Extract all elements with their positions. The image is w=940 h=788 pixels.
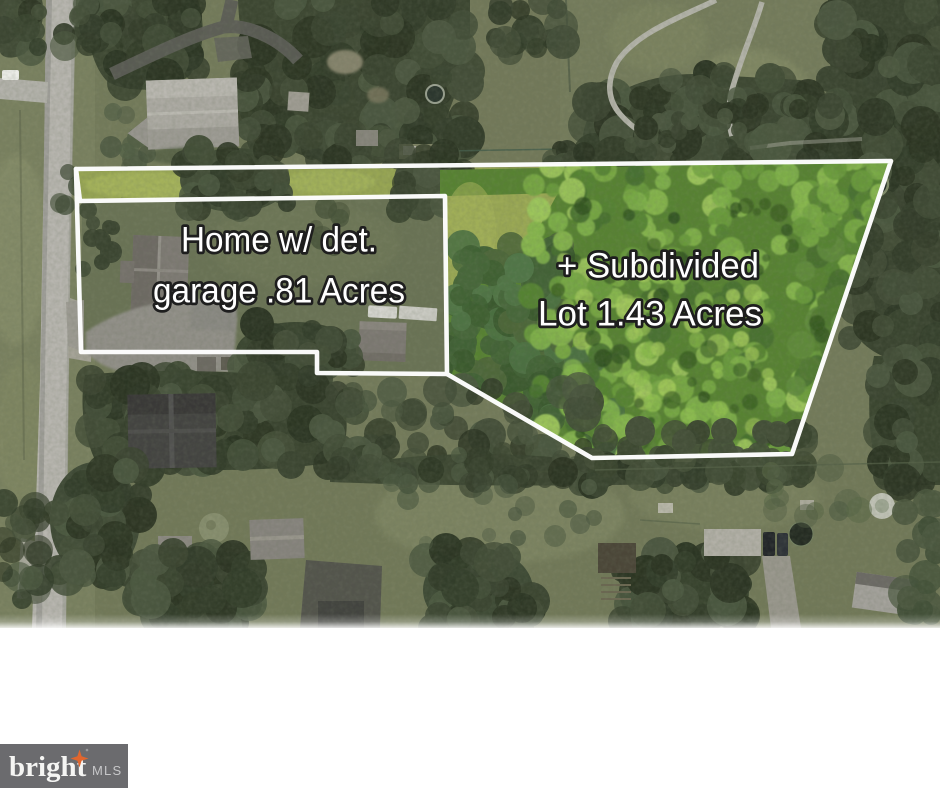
svg-text:bright: bright [9, 751, 87, 783]
svg-text:Home w/ det.: Home w/ det. [181, 220, 377, 260]
svg-text:+ Subdivided: + Subdivided [557, 246, 759, 286]
svg-text:MLS: MLS [92, 763, 122, 778]
svg-text:Lot 1.43 Acres: Lot 1.43 Acres [538, 294, 762, 334]
svg-text:garage .81 Acres: garage .81 Acres [153, 271, 405, 311]
